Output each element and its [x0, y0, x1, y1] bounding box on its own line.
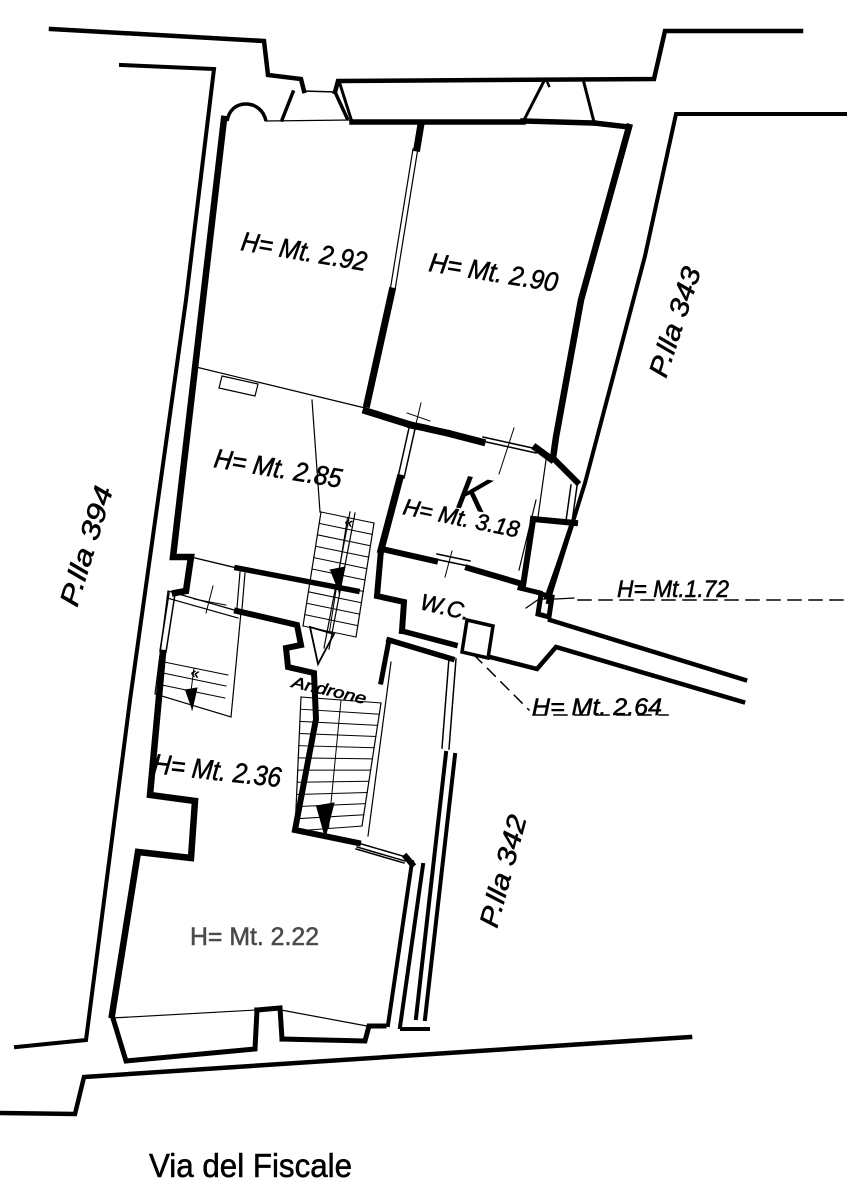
- svg-text:P.lla 343: P.lla 343: [643, 263, 707, 381]
- svg-text:H= Mt. 2.92: H= Mt. 2.92: [239, 226, 369, 277]
- svg-text:H= Mt. 2.64: H= Mt. 2.64: [532, 694, 662, 721]
- svg-text:W.C.: W.C.: [418, 589, 473, 626]
- svg-text:P.lla 342: P.lla 342: [474, 812, 533, 931]
- svg-text:H= Mt. 2.90: H= Mt. 2.90: [427, 247, 560, 297]
- svg-text:P.lla 394: P.lla 394: [54, 482, 119, 609]
- svg-text:H= Mt. 2.36: H= Mt. 2.36: [151, 748, 283, 793]
- svg-text:Via del Fiscale: Via del Fiscale: [149, 1147, 352, 1184]
- svg-text:H= Mt. 2.22: H= Mt. 2.22: [190, 923, 319, 951]
- svg-text:H= Mt.1.72: H= Mt.1.72: [617, 576, 729, 603]
- svg-text:H= Mt. 2.85: H= Mt. 2.85: [212, 443, 345, 494]
